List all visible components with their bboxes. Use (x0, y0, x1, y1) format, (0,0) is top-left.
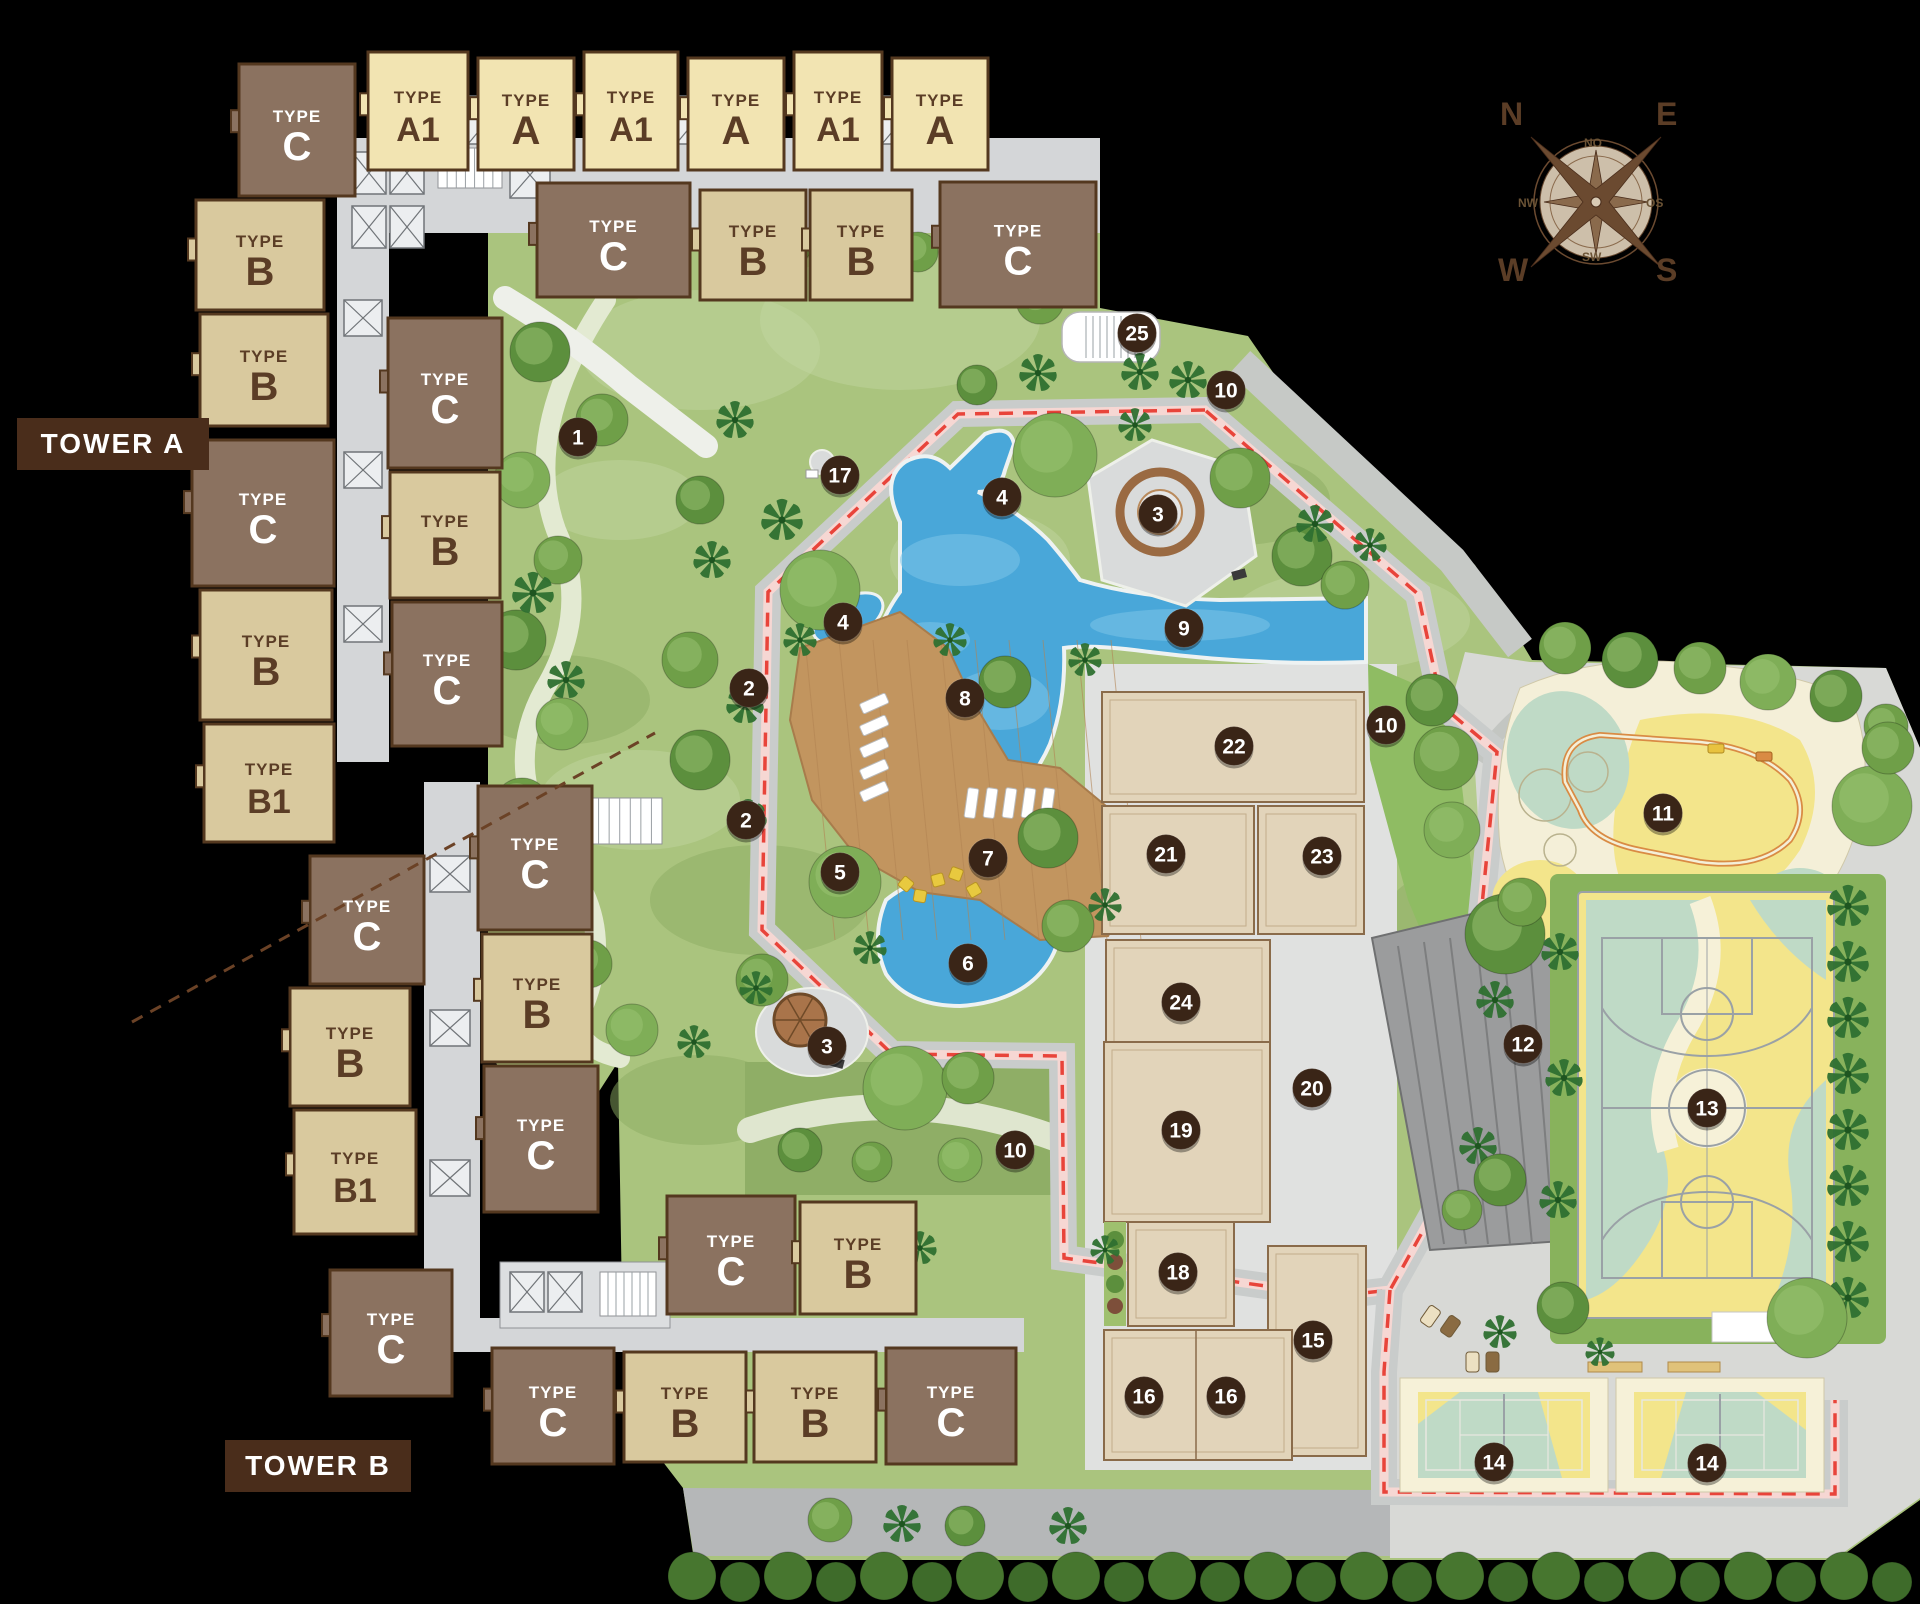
building-type-c: TYPEC (380, 318, 502, 468)
svg-text:12: 12 (1511, 1034, 1534, 1057)
svg-text:10: 10 (1374, 715, 1397, 738)
svg-text:14: 14 (1695, 1453, 1719, 1476)
hedge-bush (1008, 1562, 1048, 1602)
svg-text:TYPE: TYPE (239, 490, 287, 509)
site-plan: TYPECTYPEA1TYPEATYPEA1TYPEATYPEA1TYPEATY… (0, 0, 1920, 1604)
svg-text:TYPE: TYPE (331, 1149, 379, 1168)
svg-text:B: B (431, 530, 460, 574)
svg-text:18: 18 (1166, 1262, 1190, 1285)
amenity-marker-24: 24 (1162, 983, 1201, 1025)
compass-south-label: S (1656, 252, 1677, 289)
svg-text:TYPE: TYPE (242, 632, 290, 651)
amenity-marker-3: 3 (1139, 495, 1178, 537)
svg-text:B: B (250, 365, 279, 409)
amenity-marker-10: 10 (996, 1131, 1035, 1173)
building-type-c: TYPEC (476, 1066, 598, 1212)
building-type-b1: TYPEB1 (286, 1110, 416, 1234)
svg-text:TYPE: TYPE (607, 88, 655, 107)
svg-text:TYPE: TYPE (814, 88, 862, 107)
svg-text:3: 3 (1152, 504, 1164, 527)
svg-text:C: C (539, 1401, 568, 1445)
svg-text:4: 4 (837, 612, 849, 635)
svg-text:B: B (847, 240, 876, 284)
hedge-bush (816, 1562, 856, 1602)
svg-text:TYPE: TYPE (273, 107, 321, 126)
svg-text:TYPE: TYPE (394, 88, 442, 107)
amenity-marker-14: 14 (1688, 1444, 1727, 1486)
amenity-marker-23: 23 (1303, 837, 1342, 879)
building-type-b: TYPEB (192, 590, 332, 720)
svg-text:B: B (671, 1402, 700, 1446)
hedge-bush (1148, 1552, 1196, 1600)
hedge-bush (1296, 1562, 1336, 1602)
amenity-marker-2: 2 (730, 669, 769, 711)
svg-text:B1: B1 (333, 1172, 376, 1210)
hedge-bush (1628, 1552, 1676, 1600)
building-type-c: TYPEC (322, 1270, 452, 1396)
building-type-b: TYPEB (802, 190, 912, 300)
compass-rose (1531, 137, 1661, 267)
hedge-bush (1584, 1562, 1624, 1602)
svg-text:B1: B1 (247, 783, 290, 821)
hedge-bush (720, 1562, 760, 1602)
building-type-b: TYPEB (282, 988, 410, 1106)
svg-text:C: C (599, 235, 628, 279)
svg-text:A1: A1 (396, 111, 439, 149)
svg-text:A: A (512, 109, 541, 153)
building-type-b: TYPEB (792, 1202, 916, 1314)
svg-text:TYPE: TYPE (343, 897, 391, 916)
svg-text:TYPE: TYPE (511, 835, 559, 854)
svg-text:15: 15 (1301, 1330, 1325, 1353)
svg-text:C: C (433, 669, 462, 713)
svg-text:TYPE: TYPE (240, 347, 288, 366)
svg-text:C: C (937, 1401, 966, 1445)
svg-text:TYPE: TYPE (421, 512, 469, 531)
building-type-c: TYPEC (932, 182, 1096, 307)
amenity-marker-1: 1 (559, 418, 598, 460)
hedge-bush (912, 1562, 952, 1602)
svg-text:8: 8 (959, 688, 971, 711)
building-type-c: TYPEC (231, 64, 355, 196)
svg-text:TYPE: TYPE (421, 370, 469, 389)
hedge-bush (1244, 1552, 1292, 1600)
svg-text:TYPE: TYPE (712, 91, 760, 110)
svg-text:16: 16 (1214, 1386, 1237, 1409)
svg-text:6: 6 (962, 953, 974, 976)
svg-text:C: C (1004, 240, 1033, 284)
building-type-b: TYPEB (188, 200, 324, 310)
amenity-marker-16: 16 (1125, 1377, 1164, 1419)
hedge-bush (1104, 1562, 1144, 1602)
svg-text:TYPE: TYPE (589, 217, 637, 236)
amenity-marker-20: 20 (1293, 1069, 1332, 1111)
svg-text:TYPE: TYPE (423, 651, 471, 670)
svg-text:TYPE: TYPE (837, 222, 885, 241)
svg-text:21: 21 (1154, 844, 1178, 867)
svg-text:A: A (926, 109, 955, 153)
amenity-marker-8: 8 (946, 679, 985, 721)
hedge-bush (1392, 1562, 1432, 1602)
svg-text:22: 22 (1222, 736, 1245, 759)
building-type-c: TYPEC (659, 1196, 795, 1314)
amenity-marker-15: 15 (1294, 1321, 1333, 1363)
svg-text:TYPE: TYPE (367, 1310, 415, 1329)
building-type-b: TYPEB (382, 472, 500, 598)
building-type-c: TYPEC (484, 1348, 614, 1464)
svg-text:C: C (527, 1134, 556, 1178)
svg-text:C: C (249, 508, 278, 552)
building-type-b: TYPEB (692, 190, 806, 300)
svg-text:25: 25 (1125, 323, 1149, 346)
svg-text:C: C (353, 915, 382, 959)
hedge-bush (1820, 1552, 1868, 1600)
svg-text:A1: A1 (609, 111, 652, 149)
svg-text:10: 10 (1003, 1140, 1026, 1163)
building-type-a1: TYPEA1 (360, 52, 468, 170)
svg-text:B: B (523, 993, 552, 1037)
hedge-bush (956, 1552, 1004, 1600)
svg-text:TYPE: TYPE (834, 1235, 882, 1254)
svg-text:C: C (521, 853, 550, 897)
hedge-bush (860, 1552, 908, 1600)
building-type-a1: TYPEA1 (786, 52, 882, 170)
building-type-c: TYPEC (302, 856, 424, 984)
hedge-bush (1052, 1552, 1100, 1600)
building-type-c: TYPEC (470, 786, 592, 930)
svg-text:2: 2 (740, 810, 752, 833)
hedge-bush (668, 1552, 716, 1600)
svg-text:B: B (252, 650, 281, 694)
svg-text:TYPE: TYPE (513, 975, 561, 994)
tower-b-label: TOWER B (225, 1440, 411, 1492)
svg-text:7: 7 (982, 848, 994, 871)
amenity-marker-22: 22 (1215, 727, 1254, 769)
hedge-bush (1680, 1562, 1720, 1602)
svg-text:TYPE: TYPE (927, 1383, 975, 1402)
building-type-a: TYPEA (470, 58, 574, 170)
svg-text:TYPE: TYPE (661, 1384, 709, 1403)
svg-text:B: B (801, 1402, 830, 1446)
svg-text:TYPE: TYPE (517, 1116, 565, 1135)
svg-text:TYPE: TYPE (326, 1024, 374, 1043)
svg-text:24: 24 (1169, 992, 1193, 1015)
svg-text:TYPE: TYPE (707, 1232, 755, 1251)
svg-text:23: 23 (1310, 846, 1333, 869)
building-type-b: TYPEB (746, 1352, 876, 1462)
hedge-bush (1532, 1552, 1580, 1600)
amenity-marker-3: 3 (808, 1027, 847, 1069)
svg-text:20: 20 (1300, 1078, 1323, 1101)
svg-text:TYPE: TYPE (236, 232, 284, 251)
building-type-b: TYPEB (616, 1352, 746, 1462)
amenity-marker-11: 11 (1644, 794, 1683, 836)
svg-text:C: C (283, 125, 312, 169)
amenity-marker-10: 10 (1367, 706, 1406, 748)
hedge-bush (764, 1552, 812, 1600)
svg-text:10: 10 (1214, 380, 1237, 403)
svg-text:TYPE: TYPE (916, 91, 964, 110)
building-type-a1: TYPEA1 (576, 52, 678, 170)
building-type-b: TYPEB (192, 314, 328, 426)
svg-text:2: 2 (743, 678, 755, 701)
amenity-marker-14: 14 (1475, 1443, 1514, 1485)
amenity-marker-18: 18 (1159, 1253, 1198, 1295)
svg-text:TYPE: TYPE (729, 222, 777, 241)
building-type-c: TYPEC (878, 1348, 1016, 1464)
svg-text:14: 14 (1482, 1452, 1506, 1475)
hedge-bush (1776, 1562, 1816, 1602)
svg-text:TYPE: TYPE (529, 1383, 577, 1402)
amenity-marker-16: 16 (1207, 1377, 1246, 1419)
svg-text:B: B (246, 250, 275, 294)
compass-os-label: OS (1646, 196, 1663, 210)
svg-text:B: B (844, 1253, 873, 1297)
hedge-bush (1200, 1562, 1240, 1602)
amenity-marker-19: 19 (1162, 1111, 1201, 1153)
south-road (683, 1488, 1390, 1556)
compass-west-label: W (1498, 252, 1528, 289)
svg-text:C: C (717, 1250, 746, 1294)
compass-nw-label: NW (1518, 196, 1538, 210)
compass-north-label: N (1500, 96, 1523, 133)
amenity-marker-5: 5 (821, 853, 860, 895)
site-plan-svg: TYPECTYPEA1TYPEATYPEA1TYPEATYPEA1TYPEATY… (0, 0, 1920, 1604)
amenity-marker-21: 21 (1147, 835, 1186, 877)
amenity-marker-17: 17 (821, 456, 860, 498)
svg-text:C: C (377, 1328, 406, 1372)
hedge-bush (1872, 1562, 1912, 1602)
building-type-a: TYPEA (884, 58, 988, 170)
hedge-bush (1488, 1562, 1528, 1602)
svg-text:19: 19 (1169, 1120, 1192, 1143)
amenity-marker-2: 2 (727, 801, 766, 843)
amenity-marker-13: 13 (1688, 1089, 1727, 1131)
building-type-a: TYPEA (680, 58, 784, 170)
svg-text:17: 17 (828, 465, 851, 488)
amenity-marker-4: 4 (824, 603, 863, 645)
svg-text:13: 13 (1695, 1098, 1718, 1121)
amenity-marker-7: 7 (969, 839, 1008, 881)
svg-text:1: 1 (572, 427, 584, 450)
compass-sw-label: SW (1582, 250, 1601, 264)
building-type-b1: TYPEB1 (196, 724, 334, 842)
svg-text:A: A (722, 109, 751, 153)
svg-text:16: 16 (1132, 1386, 1155, 1409)
tower-a-label: TOWER A (17, 418, 209, 470)
svg-text:B: B (336, 1042, 365, 1086)
svg-text:TYPE: TYPE (791, 1384, 839, 1403)
svg-text:TYPE: TYPE (502, 91, 550, 110)
compass-no-label: NO (1584, 136, 1602, 150)
svg-text:TYPE: TYPE (994, 222, 1042, 241)
amenity-marker-6: 6 (949, 944, 988, 986)
svg-text:5: 5 (834, 862, 846, 885)
building-type-c: TYPEC (384, 602, 502, 746)
hedge-bush (1340, 1552, 1388, 1600)
amenity-marker-12: 12 (1504, 1025, 1543, 1067)
amenity-marker-4: 4 (983, 478, 1022, 520)
svg-text:4: 4 (996, 487, 1008, 510)
svg-text:B: B (739, 240, 768, 284)
svg-text:A1: A1 (816, 111, 859, 149)
svg-text:C: C (431, 388, 460, 432)
amenity-marker-10: 10 (1207, 371, 1246, 413)
svg-text:11: 11 (1652, 803, 1675, 826)
hedge-bush (1724, 1552, 1772, 1600)
building-type-b: TYPEB (474, 934, 592, 1062)
hedge-bush (1436, 1552, 1484, 1600)
svg-text:3: 3 (821, 1036, 833, 1059)
building-type-c: TYPEC (529, 183, 690, 297)
svg-text:TYPE: TYPE (245, 760, 293, 779)
amenity-marker-25: 25 (1118, 314, 1157, 356)
svg-text:9: 9 (1178, 618, 1190, 641)
compass-east-label: E (1656, 96, 1677, 133)
amenity-marker-9: 9 (1165, 609, 1204, 651)
